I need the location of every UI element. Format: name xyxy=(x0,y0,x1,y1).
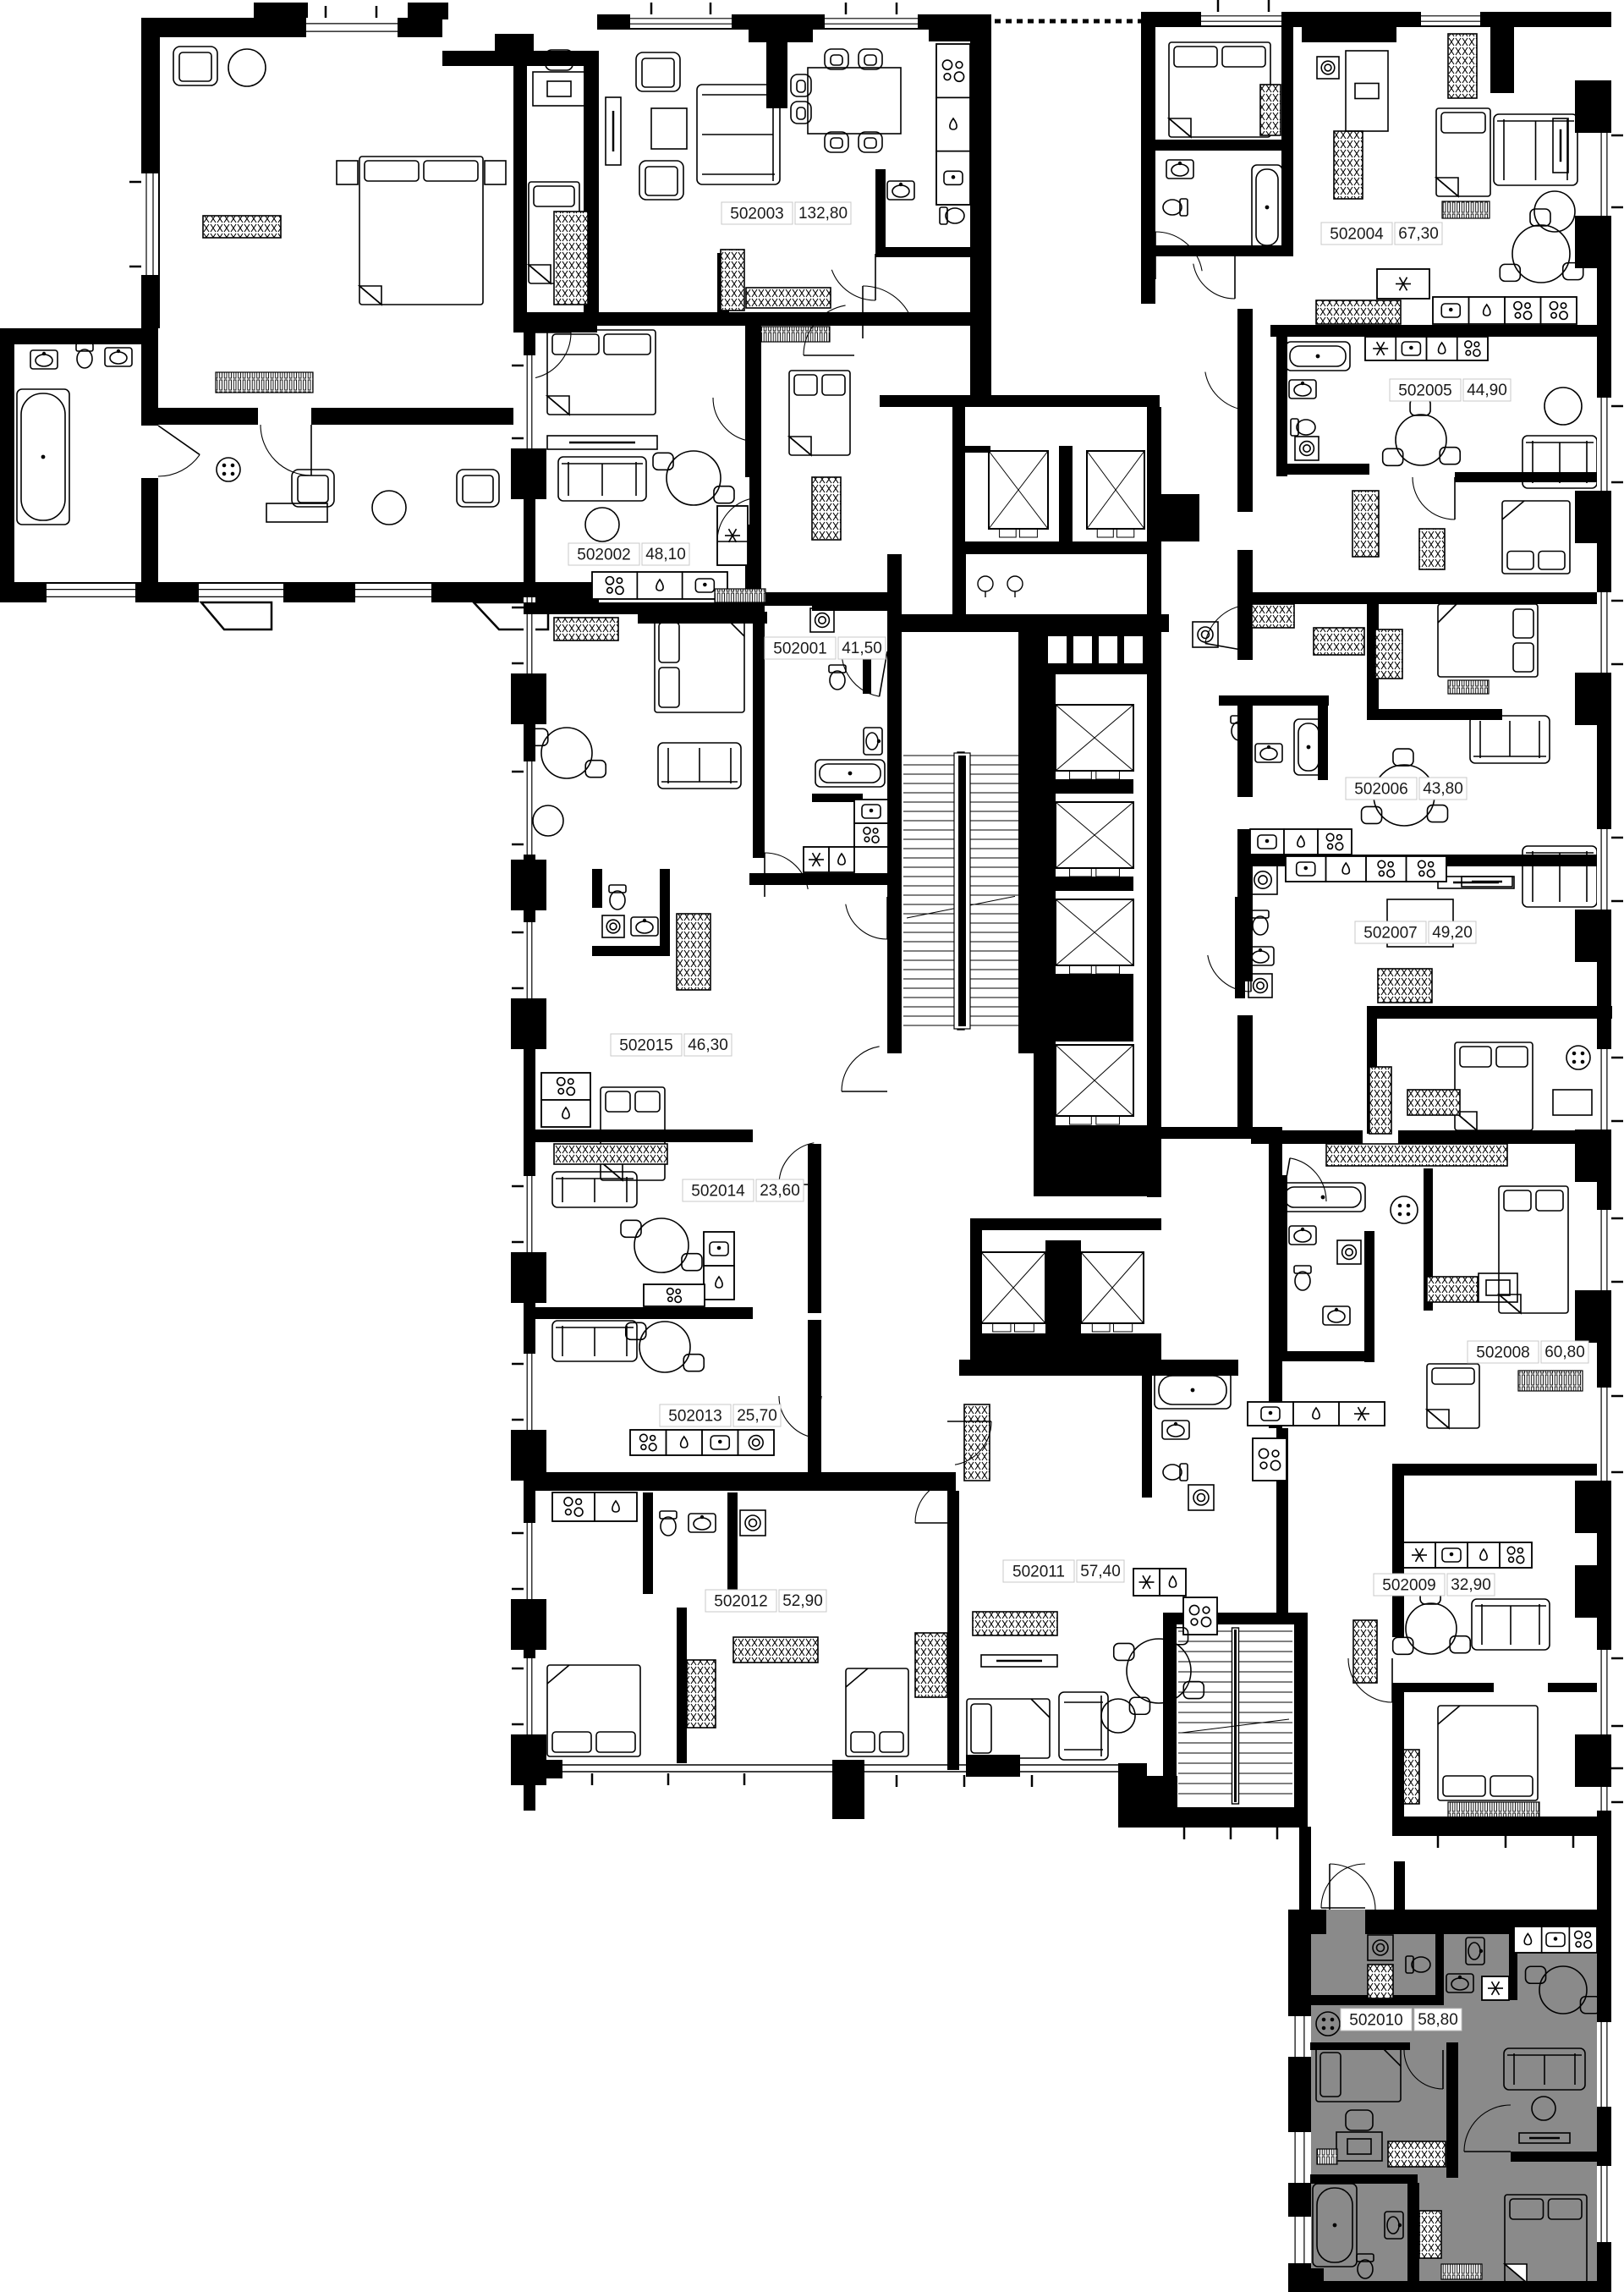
svg-text:48,10: 48,10 xyxy=(645,546,686,563)
svg-text:52,90: 52,90 xyxy=(782,1592,823,1610)
svg-text:502015: 502015 xyxy=(619,1037,672,1055)
svg-text:132,80: 132,80 xyxy=(798,205,848,223)
svg-text:502004: 502004 xyxy=(1330,226,1384,244)
svg-text:58,80: 58,80 xyxy=(1418,2011,1458,2029)
svg-text:23,60: 23,60 xyxy=(760,1182,800,1200)
svg-text:502011: 502011 xyxy=(1012,1564,1065,1581)
svg-text:67,30: 67,30 xyxy=(1398,225,1439,243)
svg-text:502002: 502002 xyxy=(577,547,630,564)
svg-text:41,50: 41,50 xyxy=(842,640,882,657)
svg-text:32,90: 32,90 xyxy=(1451,1576,1491,1594)
svg-text:502009: 502009 xyxy=(1382,1577,1435,1595)
svg-text:502003: 502003 xyxy=(730,206,783,223)
svg-text:43,80: 43,80 xyxy=(1423,780,1463,798)
svg-text:49,20: 49,20 xyxy=(1432,924,1473,942)
svg-text:60,80: 60,80 xyxy=(1544,1344,1585,1361)
svg-text:25,70: 25,70 xyxy=(737,1407,777,1425)
svg-text:57,40: 57,40 xyxy=(1080,1563,1121,1580)
svg-text:502005: 502005 xyxy=(1398,382,1451,400)
svg-text:502008: 502008 xyxy=(1476,1344,1529,1362)
svg-text:502006: 502006 xyxy=(1354,781,1407,799)
svg-text:502010: 502010 xyxy=(1349,2012,1402,2030)
svg-text:46,30: 46,30 xyxy=(688,1036,728,1054)
svg-text:44,90: 44,90 xyxy=(1467,382,1507,399)
svg-text:502012: 502012 xyxy=(714,1593,767,1611)
svg-text:502001: 502001 xyxy=(773,640,826,658)
svg-text:502007: 502007 xyxy=(1363,925,1417,943)
svg-text:502014: 502014 xyxy=(691,1183,745,1201)
svg-text:502013: 502013 xyxy=(668,1408,721,1426)
